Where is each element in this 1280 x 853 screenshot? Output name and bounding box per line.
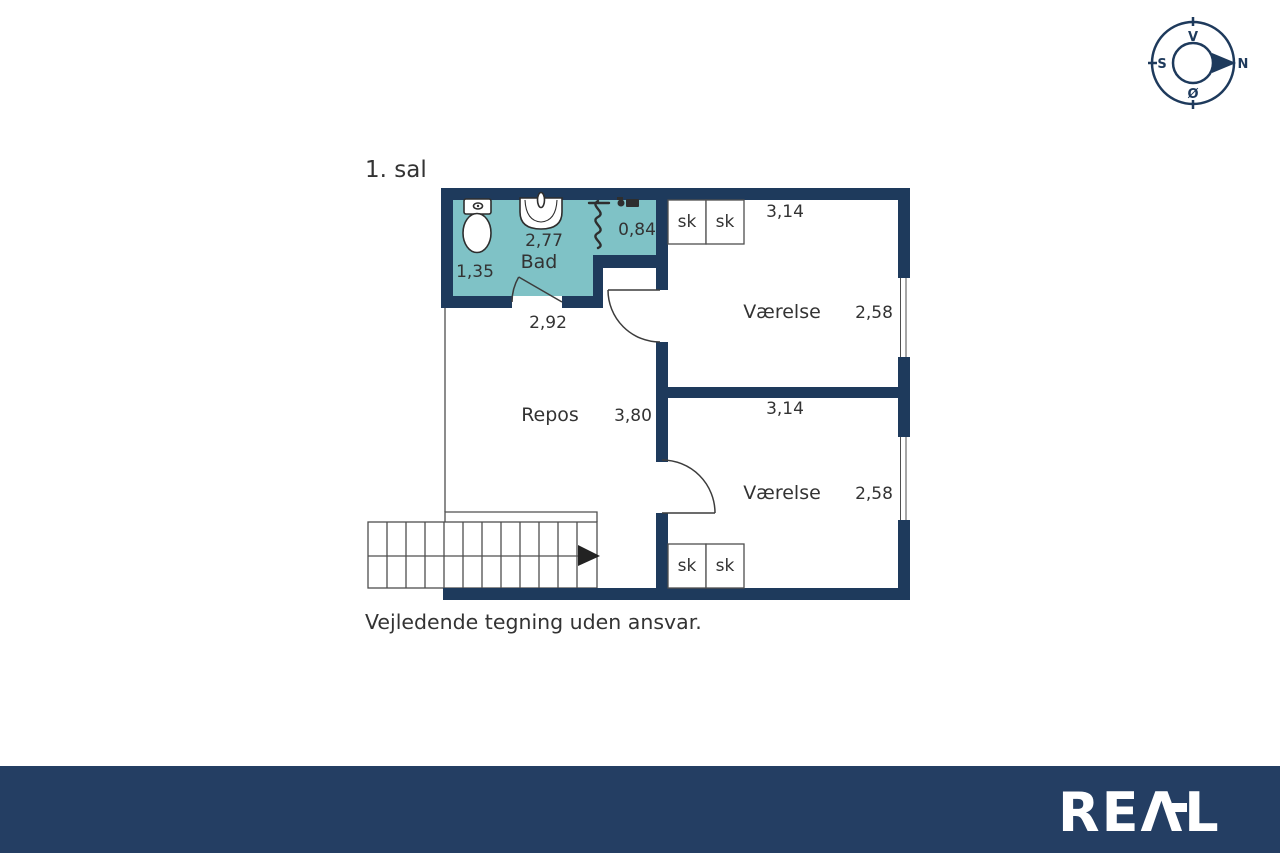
wall-top [441, 188, 910, 200]
room-top-name: Værelse [743, 301, 821, 323]
bath-dim-left: 1,35 [456, 262, 494, 282]
wall-interior-lower [656, 513, 668, 600]
room-top-dim-top: 3,14 [766, 202, 804, 222]
repos-name: Repos [521, 404, 579, 426]
shower-dim: 0,84 [618, 220, 656, 240]
footer-bar: REΛL [0, 766, 1280, 853]
compass-inner-circle [1173, 43, 1213, 83]
window-top-opening [898, 278, 910, 357]
bath-name: Bad [521, 251, 558, 273]
staircase [368, 512, 600, 588]
disclaimer-text: Vejledende tegning uden ansvar. [365, 610, 702, 634]
room-bottom-door [662, 460, 715, 513]
toilet-icon [463, 199, 491, 253]
room-bottom-name: Værelse [743, 482, 821, 504]
closet-label: sk [678, 556, 697, 576]
compass-label-bottom: Ø [1187, 87, 1198, 102]
window-bottom-opening [898, 437, 910, 520]
repos-dim-top: 2,92 [529, 313, 567, 333]
window-top [898, 278, 910, 357]
page-title: 1. sal [365, 157, 427, 183]
room-bottom-door-swing [662, 460, 715, 513]
brand-logo: REΛL [1058, 781, 1221, 844]
closet-label: sk [716, 212, 735, 232]
compass-rose-icon: V N Ø S [1148, 17, 1248, 109]
wall-left-bath [441, 188, 453, 308]
room-bottom-dim-top: 3,14 [766, 399, 804, 419]
room-top-dim-side: 2,58 [855, 303, 893, 323]
wall-shower-bottom [593, 255, 658, 268]
compass-label-top: V [1188, 30, 1198, 45]
repos-dim-side: 3,80 [614, 406, 652, 426]
stairwell-edge [445, 512, 597, 522]
wall-interior-upper [656, 200, 668, 290]
room-top-door-swing [608, 290, 660, 342]
window-bottom [898, 437, 910, 520]
room-bottom-closets: sk sk [668, 544, 744, 588]
closet-label: sk [716, 556, 735, 576]
room-top-closets: sk sk [668, 200, 744, 244]
room-bottom-dim-side: 2,58 [855, 484, 893, 504]
brand-logo-crossbar [1172, 803, 1187, 812]
sink-icon [520, 193, 562, 230]
floorplan-canvas: 1. sal [0, 0, 1280, 853]
room-top-door [608, 290, 660, 342]
compass-label-left: S [1157, 57, 1166, 72]
wall-bath-bottom-left [441, 296, 512, 308]
bath-dim-top: 2,77 [525, 231, 563, 251]
wall-room-divider [656, 387, 910, 398]
wall-bottom [443, 588, 910, 600]
closet-label: sk [678, 212, 697, 232]
floorplan-page: 1. sal [0, 0, 1280, 853]
wall-interior-middle [656, 342, 668, 462]
compass-label-right: N [1238, 57, 1249, 72]
